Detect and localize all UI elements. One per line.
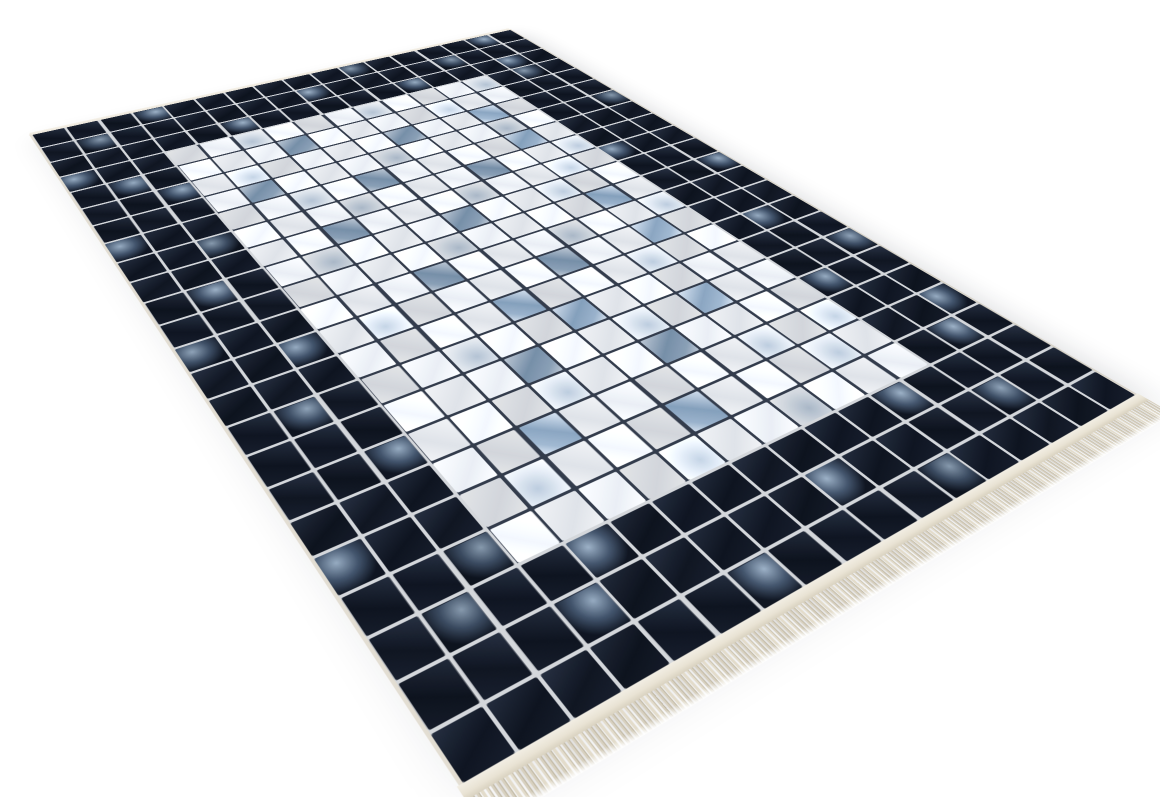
rug <box>32 30 1135 783</box>
rug-tile-grid <box>32 30 1135 783</box>
photo-canvas <box>0 0 1160 797</box>
